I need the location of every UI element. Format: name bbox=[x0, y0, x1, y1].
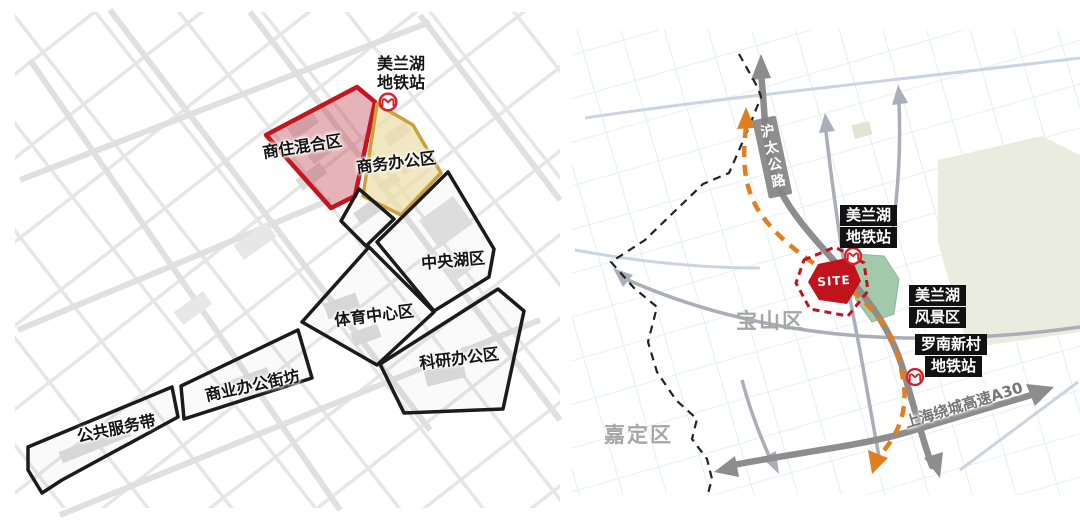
station-chip-luonan-line2: 地铁站 bbox=[925, 356, 982, 377]
station-label-left-line2: 地铁站 bbox=[377, 73, 425, 92]
metro-station-icon-meilanhu bbox=[845, 248, 861, 264]
station-chip-meilanhu-line2: 地铁站 bbox=[840, 227, 897, 248]
station-chip-meilanhu-line1: 美兰湖 bbox=[840, 205, 897, 226]
district-label-baoshan: 宝山区 bbox=[736, 305, 805, 335]
scenic-chip-line1: 美兰湖 bbox=[909, 285, 966, 306]
scenic-chip-line2: 风景区 bbox=[909, 307, 966, 328]
scenic-chip: 美兰湖 风景区 bbox=[909, 285, 966, 328]
urban-planning-figure: 美兰湖 地铁站 商住混合区 商务办公区 中央湖区 体育中心区 科研办公区 商业办… bbox=[0, 0, 1080, 520]
metro-station-icon-left bbox=[380, 94, 397, 111]
station-chip-meilanhu: 美兰湖 地铁站 bbox=[840, 205, 897, 248]
station-label-left: 美兰湖 地铁站 bbox=[377, 54, 425, 92]
station-chip-luonan-line1: 罗南新村 bbox=[915, 334, 987, 355]
map-canvas bbox=[0, 0, 1080, 520]
district-label-jiading: 嘉定区 bbox=[604, 419, 673, 449]
station-label-left-line1: 美兰湖 bbox=[377, 54, 425, 73]
station-chip-luonan: 罗南新村 地铁站 bbox=[915, 334, 987, 377]
